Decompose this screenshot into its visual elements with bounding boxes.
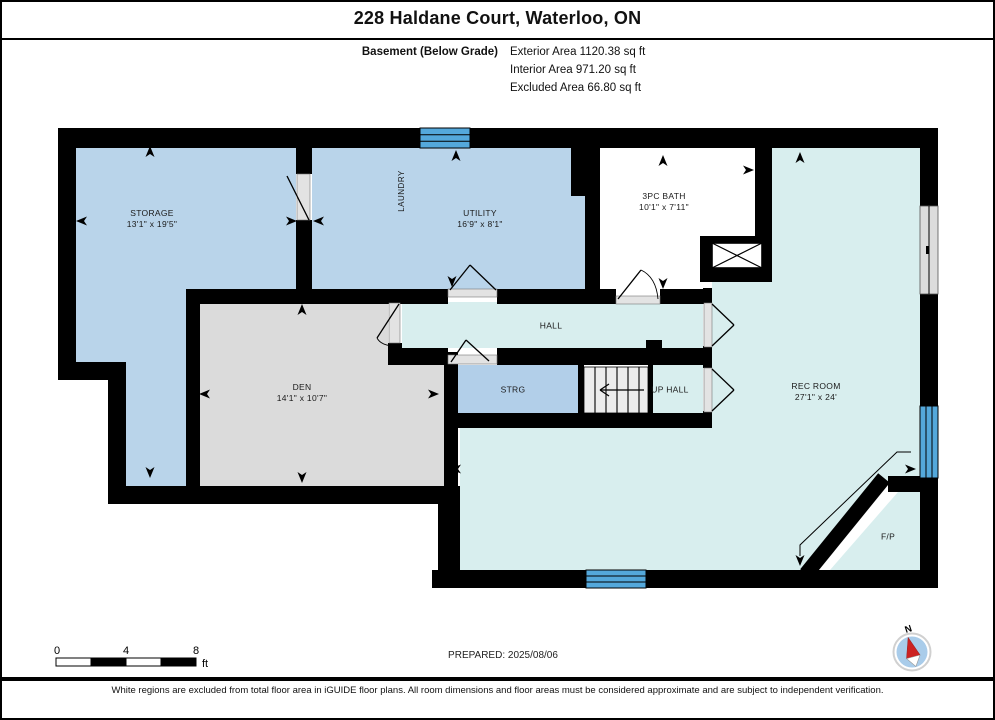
wall-segment [58, 128, 938, 148]
scale-label-4: 4 [123, 645, 129, 657]
room-dims: 13'1" x 19'5" [127, 219, 178, 230]
wall-segment [186, 289, 448, 304]
wall-segment [388, 295, 402, 303]
label-laundry: LAUNDRY [397, 161, 407, 221]
sliding-door-right [920, 206, 938, 294]
wall-segment [703, 411, 712, 428]
floor-plan-page: 228 Haldane Court, Waterloo, ON Basement… [0, 0, 995, 720]
label-strg: STRG [501, 385, 526, 396]
scale-label-0: 0 [54, 645, 60, 657]
window-top [420, 128, 470, 148]
stairs [584, 367, 648, 413]
wall-segment [497, 348, 712, 365]
label-hall: HALL [540, 321, 562, 332]
scale-bar: 0 4 8 ft [54, 645, 208, 670]
wall-segment [755, 148, 772, 238]
wall-segment [646, 340, 662, 350]
wall-segment [108, 380, 126, 504]
room-name: 3PC BATH [639, 191, 689, 202]
room-utility [312, 148, 585, 289]
room-name: REC ROOM [791, 381, 840, 392]
wall-segment [762, 236, 772, 268]
wall-segment [703, 346, 712, 368]
wall-segment [186, 289, 200, 486]
wall-segment [432, 570, 938, 588]
wall-segment [578, 365, 584, 415]
room-name: UTILITY [457, 208, 503, 219]
room-dims: 16'9" x 8'1" [457, 219, 503, 230]
label-den: DEN 14'1" x 10'7" [277, 382, 328, 404]
label-storage: STORAGE 13'1" x 19'5" [127, 208, 178, 230]
room-dims: 27'1" x 24' [791, 392, 840, 403]
wall-segment [888, 476, 920, 492]
footer-disclaimer: White regions are excluded from total fl… [0, 685, 995, 696]
wall-segment [108, 486, 460, 504]
label-utility: UTILITY 16'9" x 8'1" [457, 208, 503, 230]
room-dims: 10'1" x 7'11" [639, 202, 689, 213]
room-name: DEN [277, 382, 328, 393]
wall-segment [703, 288, 712, 304]
label-rec-room: REC ROOM 27'1" x 24' [791, 381, 840, 403]
wall-segment [296, 128, 312, 174]
footer-divider [0, 677, 995, 681]
bath-closet-xbox [712, 243, 762, 268]
label-up-hall: UP HALL [651, 385, 688, 396]
wall-segment [58, 362, 126, 380]
wall-segment [58, 128, 76, 380]
label-fireplace: F/P [881, 532, 895, 543]
compass-icon: N [894, 623, 931, 670]
room-name: STORAGE [127, 208, 178, 219]
room-dims: 14'1" x 10'7" [277, 393, 328, 404]
wall-segment [388, 348, 448, 365]
label-bath: 3PC BATH 10'1" x 7'11" [639, 191, 689, 213]
wall-segment [444, 413, 712, 428]
scale-unit: ft [202, 658, 208, 670]
scale-label-8: 8 [193, 645, 199, 657]
floor-plan-drawing: 0 4 8 ft N [0, 0, 995, 720]
wall-segment [920, 128, 938, 588]
wall-segment [700, 268, 772, 282]
prepared-date: PREPARED: 2025/08/06 [403, 650, 603, 661]
window-right [920, 406, 938, 478]
window-bottom [586, 570, 646, 588]
